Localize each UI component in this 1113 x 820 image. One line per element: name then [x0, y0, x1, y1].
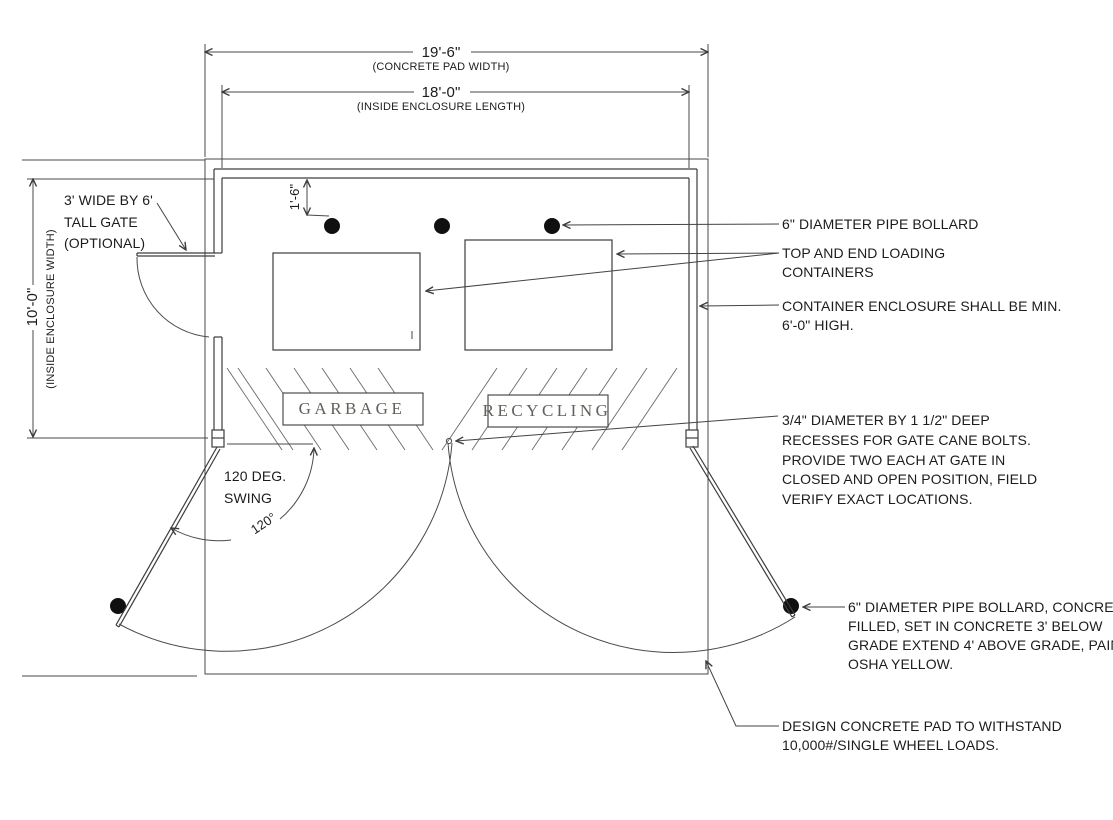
- recycling-label: RECYCLING: [483, 401, 612, 420]
- garbage-container: [273, 253, 420, 350]
- containers: [273, 240, 612, 350]
- cane-bolt-line-2: RECESSES FOR GATE CANE BOLTS.: [782, 432, 1031, 448]
- container-label-boxes: GARBAGE RECYCLING: [283, 393, 611, 427]
- bollard-offset-value: 1'-6": [287, 184, 302, 211]
- annotation-optional-gate: 3' WIDE BY 6' TALL GATE (OPTIONAL): [64, 192, 153, 251]
- bollard-detail-line-2: FILLED, SET IN CONCRETE 3' BELOW: [848, 618, 1103, 634]
- bollards: [110, 218, 799, 614]
- gate-note-line-3: (OPTIONAL): [64, 235, 145, 251]
- gate-note-line-1: 3' WIDE BY 6': [64, 192, 153, 208]
- leader-pipe-bollard: [563, 224, 779, 225]
- pad-design-line-2: 10,000#/SINGLE WHEEL LOADS.: [782, 737, 999, 753]
- swing-angle-label: 120°: [248, 509, 279, 537]
- enclosure-width-value: 10'-0": [24, 288, 41, 327]
- pad-width-label: (CONCRETE PAD WIDTH): [372, 61, 509, 73]
- dimension-bollard-offset: 1'-6": [287, 180, 329, 216]
- dimension-enclosure-length: 18'-0" (INSIDE ENCLOSURE LENGTH): [222, 84, 689, 168]
- leader-containers-right: [617, 253, 779, 254]
- enclosure-height-line-2: 6'-0" HIGH.: [782, 317, 854, 333]
- bollard-2: [434, 218, 450, 234]
- optional-gate-swing-arc: [137, 257, 209, 337]
- enclosure-height-line-1: CONTAINER ENCLOSURE SHALL BE MIN.: [782, 298, 1061, 314]
- gate-note-line-2: TALL GATE: [64, 214, 138, 230]
- pad-width-value: 19'-6": [422, 44, 461, 61]
- dimension-swing-angle: 120° 120 DEG. SWING: [171, 444, 314, 541]
- loading-containers-line-1: TOP AND END LOADING: [782, 245, 945, 261]
- pipe-bollard-line-1: 6" DIAMETER PIPE BOLLARD: [782, 216, 978, 232]
- enclosure-length-label: (INSIDE ENCLOSURE LENGTH): [357, 101, 525, 113]
- cane-bolt-line-4: CLOSED AND OPEN POSITION, FIELD: [782, 471, 1037, 487]
- site-plan-drawing: GARBAGE RECYCLING 120° 120 DEG. SWING: [0, 0, 1113, 820]
- annotation-bollard-detail: 6" DIAMETER PIPE BOLLARD, CONCRETE FILLE…: [848, 599, 1113, 672]
- bollard-1: [324, 218, 340, 234]
- gate-leaves: [116, 446, 795, 627]
- enclosure-width-label: (INSIDE ENCLOSURE WIDTH): [45, 229, 57, 388]
- annotation-loading-containers: TOP AND END LOADING CONTAINERS: [782, 245, 945, 280]
- swing-note-line-1: 120 DEG.: [224, 468, 286, 484]
- cane-bolt-line-5: VERIFY EXACT LOCATIONS.: [782, 491, 973, 507]
- optional-gate-door: [137, 253, 215, 337]
- bollard-detail-line-3: GRADE EXTEND 4' ABOVE GRADE, PAINT: [848, 637, 1113, 653]
- recycling-container: [465, 240, 612, 350]
- loading-containers-line-2: CONTAINERS: [782, 264, 874, 280]
- leader-pad-design: [706, 661, 779, 726]
- swing-note-line-2: SWING: [224, 490, 272, 506]
- bollard-detail-line-1: 6" DIAMETER PIPE BOLLARD, CONCRETE: [848, 599, 1113, 615]
- enclosure-length-value: 18'-0": [422, 84, 461, 101]
- right-gate-swing-arc: [448, 443, 795, 653]
- garbage-label: GARBAGE: [299, 399, 406, 418]
- annotation-pipe-bollard: 6" DIAMETER PIPE BOLLARD: [782, 216, 978, 232]
- cane-bolt-line-1: 3/4" DIAMETER BY 1 1/2" DEEP: [782, 412, 990, 428]
- pad-design-line-1: DESIGN CONCRETE PAD TO WITHSTAND: [782, 718, 1062, 734]
- bollard-detail-line-4: OSHA YELLOW.: [848, 656, 953, 672]
- gate-post-left: [212, 430, 224, 447]
- plan-canvas: GARBAGE RECYCLING 120° 120 DEG. SWING: [0, 0, 1113, 820]
- annotation-enclosure-height: CONTAINER ENCLOSURE SHALL BE MIN. 6'-0" …: [782, 298, 1061, 333]
- leader-optional-gate: [157, 203, 186, 250]
- cane-bolt-line-3: PROVIDE TWO EACH AT GATE IN: [782, 452, 1005, 468]
- leader-lines: [157, 203, 845, 726]
- gate-post-right: [686, 430, 698, 447]
- annotation-cane-bolt-recesses: 3/4" DIAMETER BY 1 1/2" DEEP RECESSES FO…: [782, 412, 1037, 507]
- bollard-3: [544, 218, 560, 234]
- annotation-pad-design: DESIGN CONCRETE PAD TO WITHSTAND 10,000#…: [782, 718, 1062, 753]
- leader-containers-left: [426, 253, 779, 291]
- swing-arcs: [119, 443, 795, 653]
- leader-enclosure-height: [700, 305, 779, 306]
